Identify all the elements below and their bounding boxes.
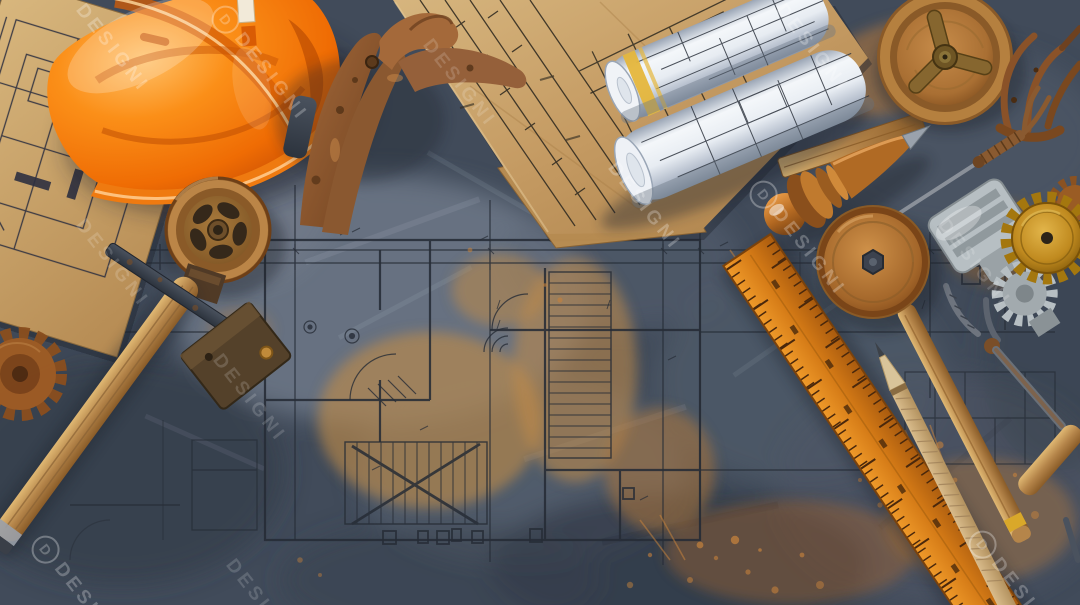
scene-canvas <box>0 0 1080 605</box>
construction-flatlay-photo: DESIGNI D DESIGNI DESIGNI DESIGNI DESIGN… <box>0 0 1080 605</box>
